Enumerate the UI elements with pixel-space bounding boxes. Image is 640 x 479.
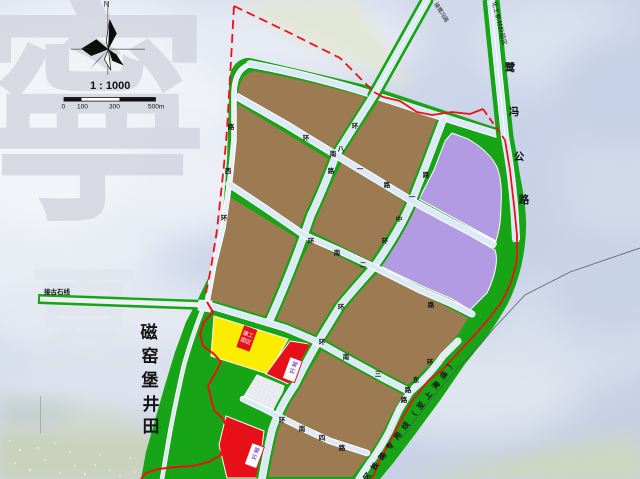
svg-text:西: 西 (225, 167, 232, 175)
svg-text:环: 环 (382, 237, 389, 245)
svg-text:路: 路 (405, 385, 412, 394)
svg-text:南: 南 (330, 149, 337, 158)
svg-text:一: 一 (409, 194, 416, 201)
svg-text:二: 二 (360, 261, 367, 269)
svg-text:磁: 磁 (141, 322, 158, 342)
svg-text:一: 一 (357, 166, 364, 173)
svg-text:环: 环 (427, 358, 434, 366)
svg-text:环: 环 (303, 134, 310, 142)
svg-text:鹭: 鹭 (505, 61, 516, 74)
svg-text:路: 路 (423, 170, 430, 179)
svg-text:路: 路 (228, 122, 235, 131)
svg-text:路: 路 (401, 395, 408, 404)
svg-text:环: 环 (352, 122, 359, 130)
svg-text:接古石线: 接古石线 (44, 287, 71, 296)
svg-text:南: 南 (334, 248, 341, 257)
svg-text:田: 田 (143, 417, 160, 436)
svg-text:四: 四 (319, 434, 326, 442)
svg-text:路: 路 (384, 180, 391, 189)
svg-text:寧: 寧 (0, 0, 212, 250)
svg-text:南: 南 (299, 424, 306, 433)
svg-text:冯: 冯 (509, 106, 520, 118)
svg-text:环: 环 (279, 416, 286, 424)
svg-text:500m: 500m (148, 104, 164, 111)
svg-text:夏: 夏 (28, 261, 141, 385)
svg-text:窑: 窑 (142, 346, 159, 366)
svg-text:八: 八 (337, 145, 345, 153)
svg-text:N: N (104, 0, 110, 9)
svg-text:300: 300 (109, 104, 120, 111)
svg-text:堡: 堡 (142, 370, 159, 390)
svg-text:三: 三 (375, 370, 382, 378)
svg-text:环: 环 (221, 214, 228, 222)
svg-text:中: 中 (396, 214, 403, 223)
svg-text:0: 0 (62, 104, 66, 111)
svg-text:路: 路 (519, 193, 530, 206)
svg-text:东: 东 (413, 375, 420, 384)
svg-text:1 : 1000: 1 : 1000 (90, 80, 130, 92)
svg-text:100: 100 (77, 104, 88, 111)
svg-text:公: 公 (514, 151, 525, 163)
svg-text:环: 环 (308, 237, 315, 245)
svg-text:环: 环 (338, 303, 345, 311)
svg-text:环: 环 (319, 338, 326, 346)
svg-text:井: 井 (143, 394, 160, 414)
svg-text:路: 路 (339, 443, 346, 452)
svg-text:南: 南 (343, 352, 350, 361)
svg-text:路: 路 (428, 300, 435, 309)
svg-text:路: 路 (328, 166, 335, 175)
